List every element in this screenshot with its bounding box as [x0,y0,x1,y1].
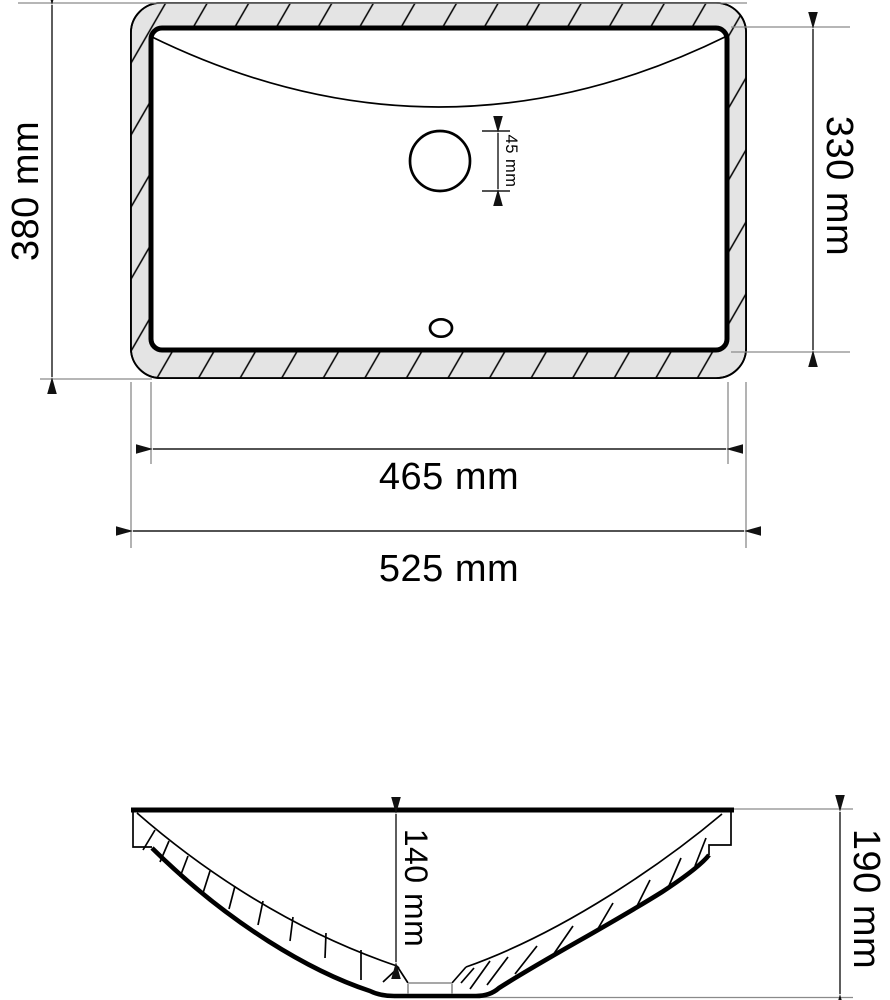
wall-hatch-left [143,830,399,982]
drain-hole [410,131,470,191]
label-inner-depth: 330 mm [818,116,860,256]
basin-dimension-drawing: 380 mm 330 mm 45 mm 465 mm 525 mm 140 mm… [0,0,890,1000]
label-total-height: 190 mm [845,829,887,969]
section-inner-left [137,813,397,966]
label-bowl-depth: 140 mm [398,829,434,948]
top-view [131,3,746,378]
section-view [131,809,853,998]
overflow-hole [430,319,452,336]
label-outer-width: 525 mm [379,548,519,590]
section-right-step [709,812,731,855]
label-drain-diameter: 45 mm [502,135,520,188]
wall-hatch-right [470,838,706,989]
label-outer-depth: 380 mm [5,121,47,261]
drawing-svg: 380 mm 330 mm 45 mm 465 mm 525 mm 140 mm… [0,0,890,1000]
label-inner-width: 465 mm [379,456,519,498]
recess-left-slant [397,966,408,983]
section-inner-right [466,814,722,967]
